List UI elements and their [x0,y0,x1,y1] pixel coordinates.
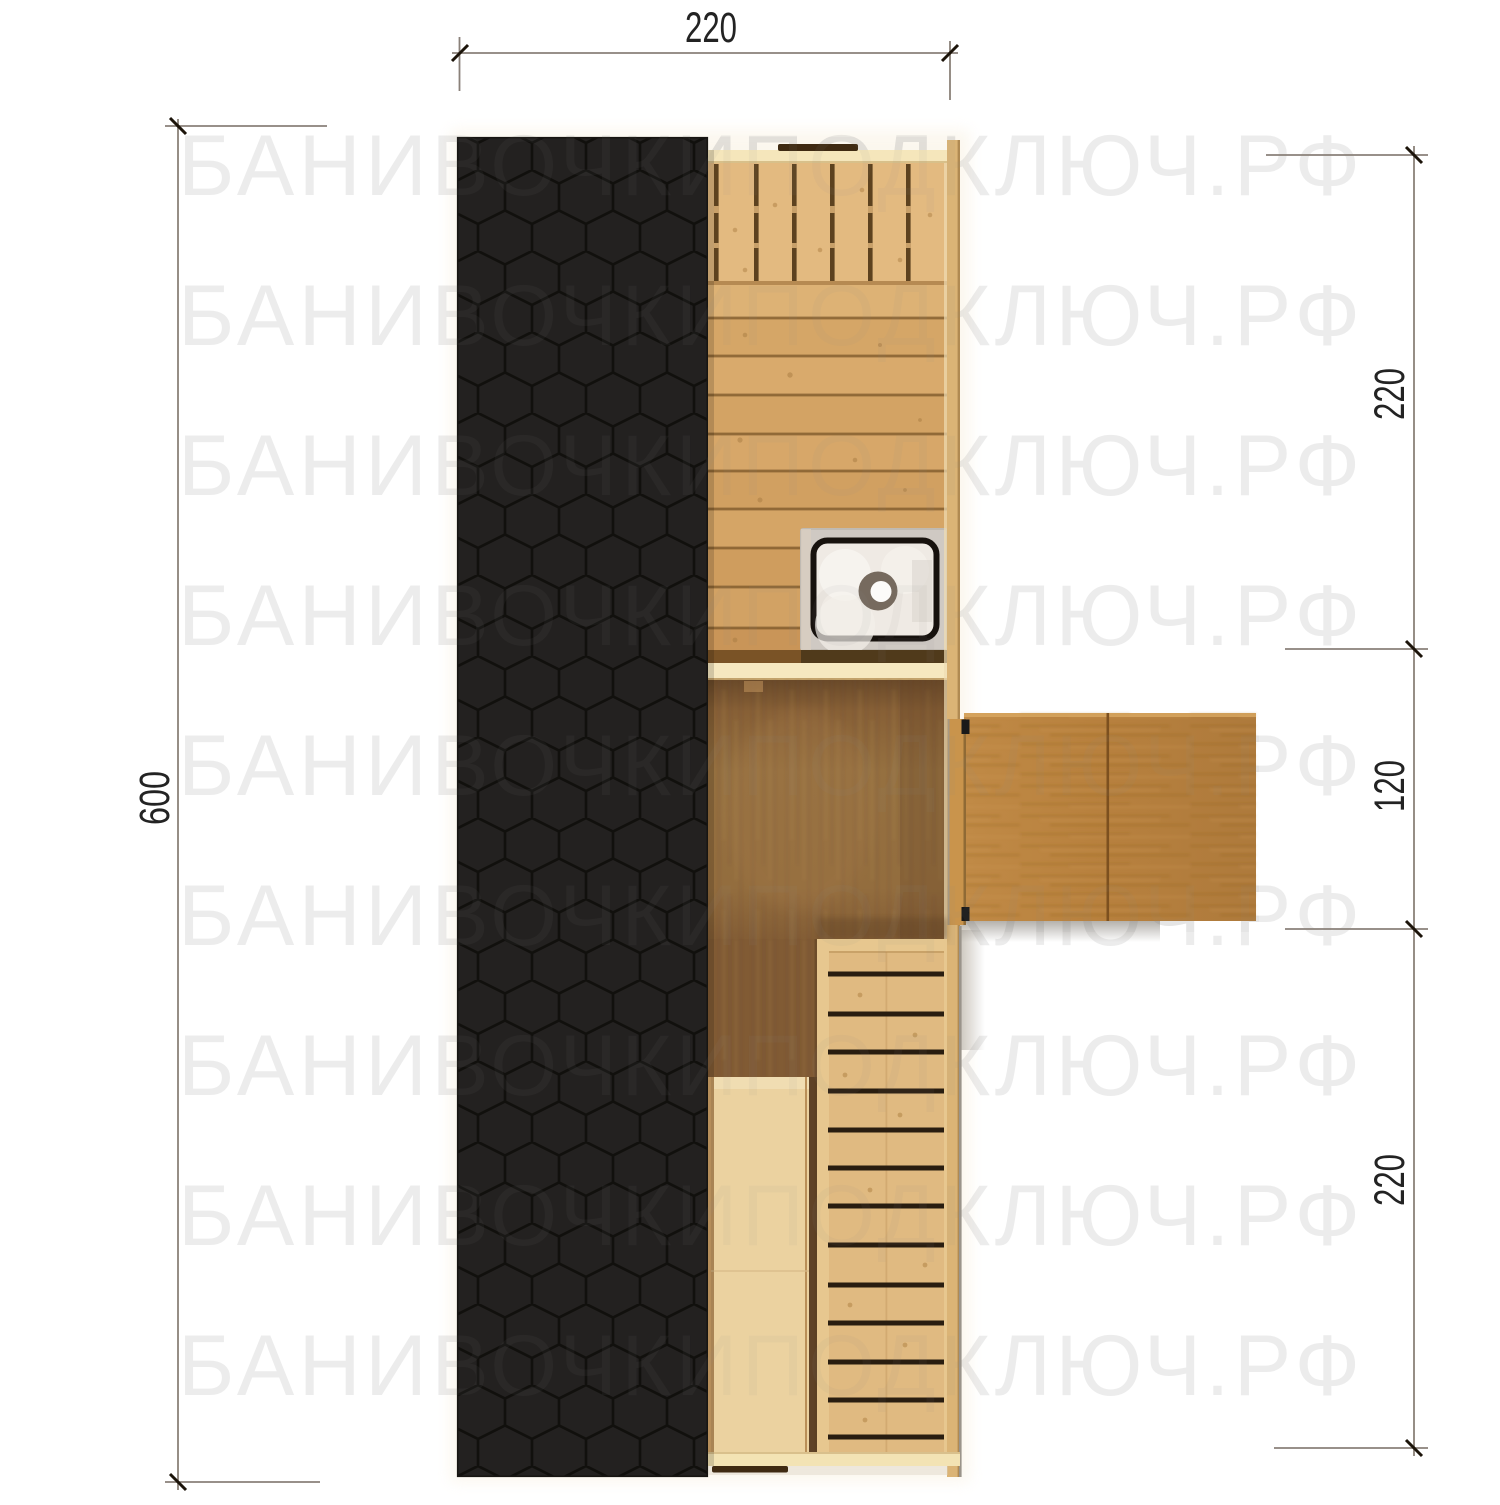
svg-text:120: 120 [1366,760,1414,812]
svg-text:600: 600 [131,771,179,825]
svg-text:220: 220 [1366,1154,1414,1206]
svg-text:220: 220 [1366,368,1414,420]
svg-text:220: 220 [685,4,737,52]
